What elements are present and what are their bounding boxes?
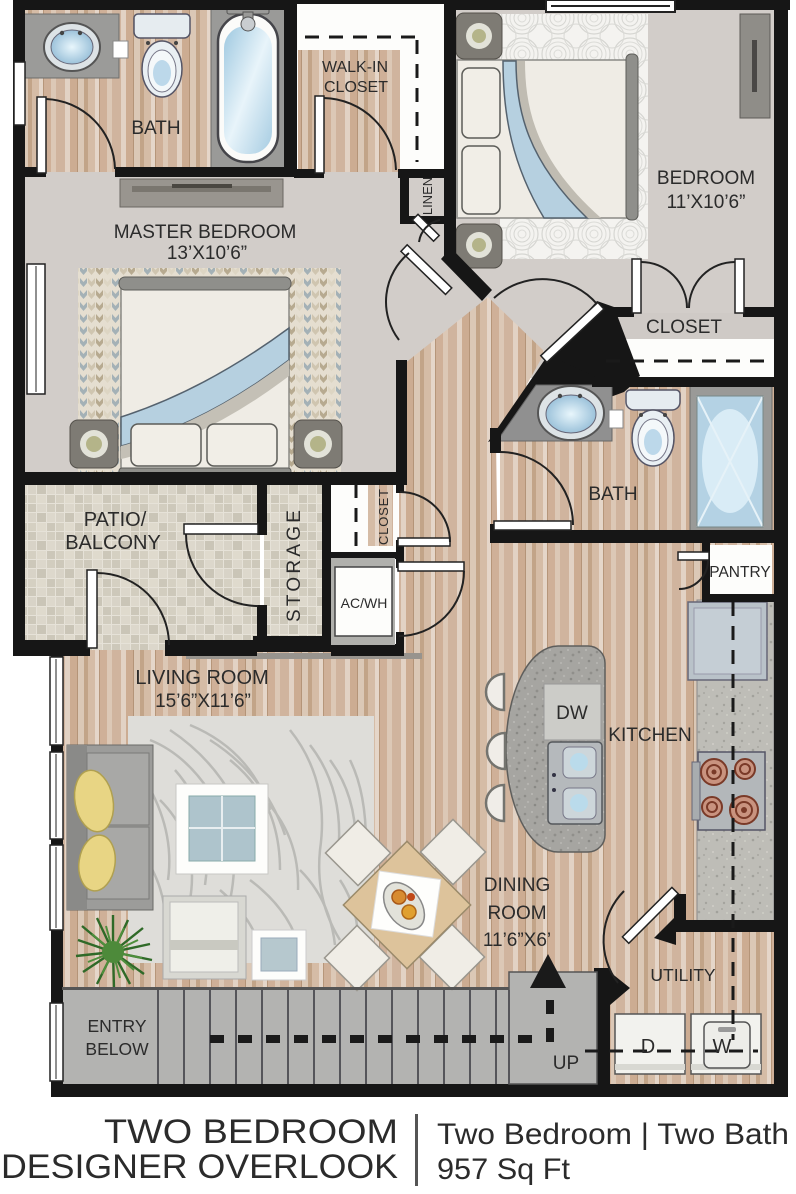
svg-text:PATIO/: PATIO/ — [84, 509, 147, 531]
svg-text:PANTRY: PANTRY — [709, 564, 770, 581]
svg-text:WALK-IN: WALK-IN — [322, 59, 388, 76]
svg-text:BALCONY: BALCONY — [65, 532, 161, 554]
svg-text:KITCHEN: KITCHEN — [608, 725, 691, 746]
svg-text:DINING: DINING — [484, 875, 551, 896]
svg-text:CLOSET: CLOSET — [646, 317, 722, 338]
svg-text:11’6”X6’: 11’6”X6’ — [483, 930, 551, 951]
svg-text:ENTRY: ENTRY — [88, 1016, 147, 1036]
svg-text:UTILITY: UTILITY — [650, 965, 715, 985]
svg-text:AC/WH: AC/WH — [341, 595, 388, 611]
svg-text:ROOM: ROOM — [487, 903, 546, 924]
svg-text:CLOSET: CLOSET — [324, 79, 388, 96]
svg-text:STORAGE: STORAGE — [284, 510, 305, 622]
svg-text:Two Bedroom | Two Bath: Two Bedroom | Two Bath — [437, 1118, 789, 1151]
svg-text:CLOSET: CLOSET — [376, 489, 391, 545]
svg-text:BATH: BATH — [588, 484, 637, 505]
svg-text:TWO BEDROOM: TWO BEDROOM — [104, 1113, 398, 1151]
svg-text:D: D — [641, 1036, 655, 1058]
svg-text:BATH: BATH — [131, 118, 180, 139]
svg-text:957 Sq Ft: 957 Sq Ft — [437, 1153, 571, 1186]
svg-text:15’6”X11’6”: 15’6”X11’6” — [155, 691, 251, 712]
svg-text:11’X10’6”: 11’X10’6” — [667, 192, 746, 213]
svg-text:BEDROOM: BEDROOM — [657, 168, 755, 189]
svg-text:13’X10’6”: 13’X10’6” — [167, 243, 247, 264]
svg-text:W: W — [713, 1036, 732, 1058]
svg-text:LIVING ROOM: LIVING ROOM — [135, 667, 268, 689]
svg-text:DESIGNER OVERLOOK: DESIGNER OVERLOOK — [1, 1148, 398, 1186]
svg-text:LINEN: LINEN — [420, 177, 435, 215]
svg-text:MASTER BEDROOM: MASTER BEDROOM — [114, 222, 297, 243]
svg-text:UP: UP — [553, 1053, 579, 1074]
svg-text:BELOW: BELOW — [85, 1039, 149, 1059]
svg-text:DW: DW — [556, 703, 588, 724]
